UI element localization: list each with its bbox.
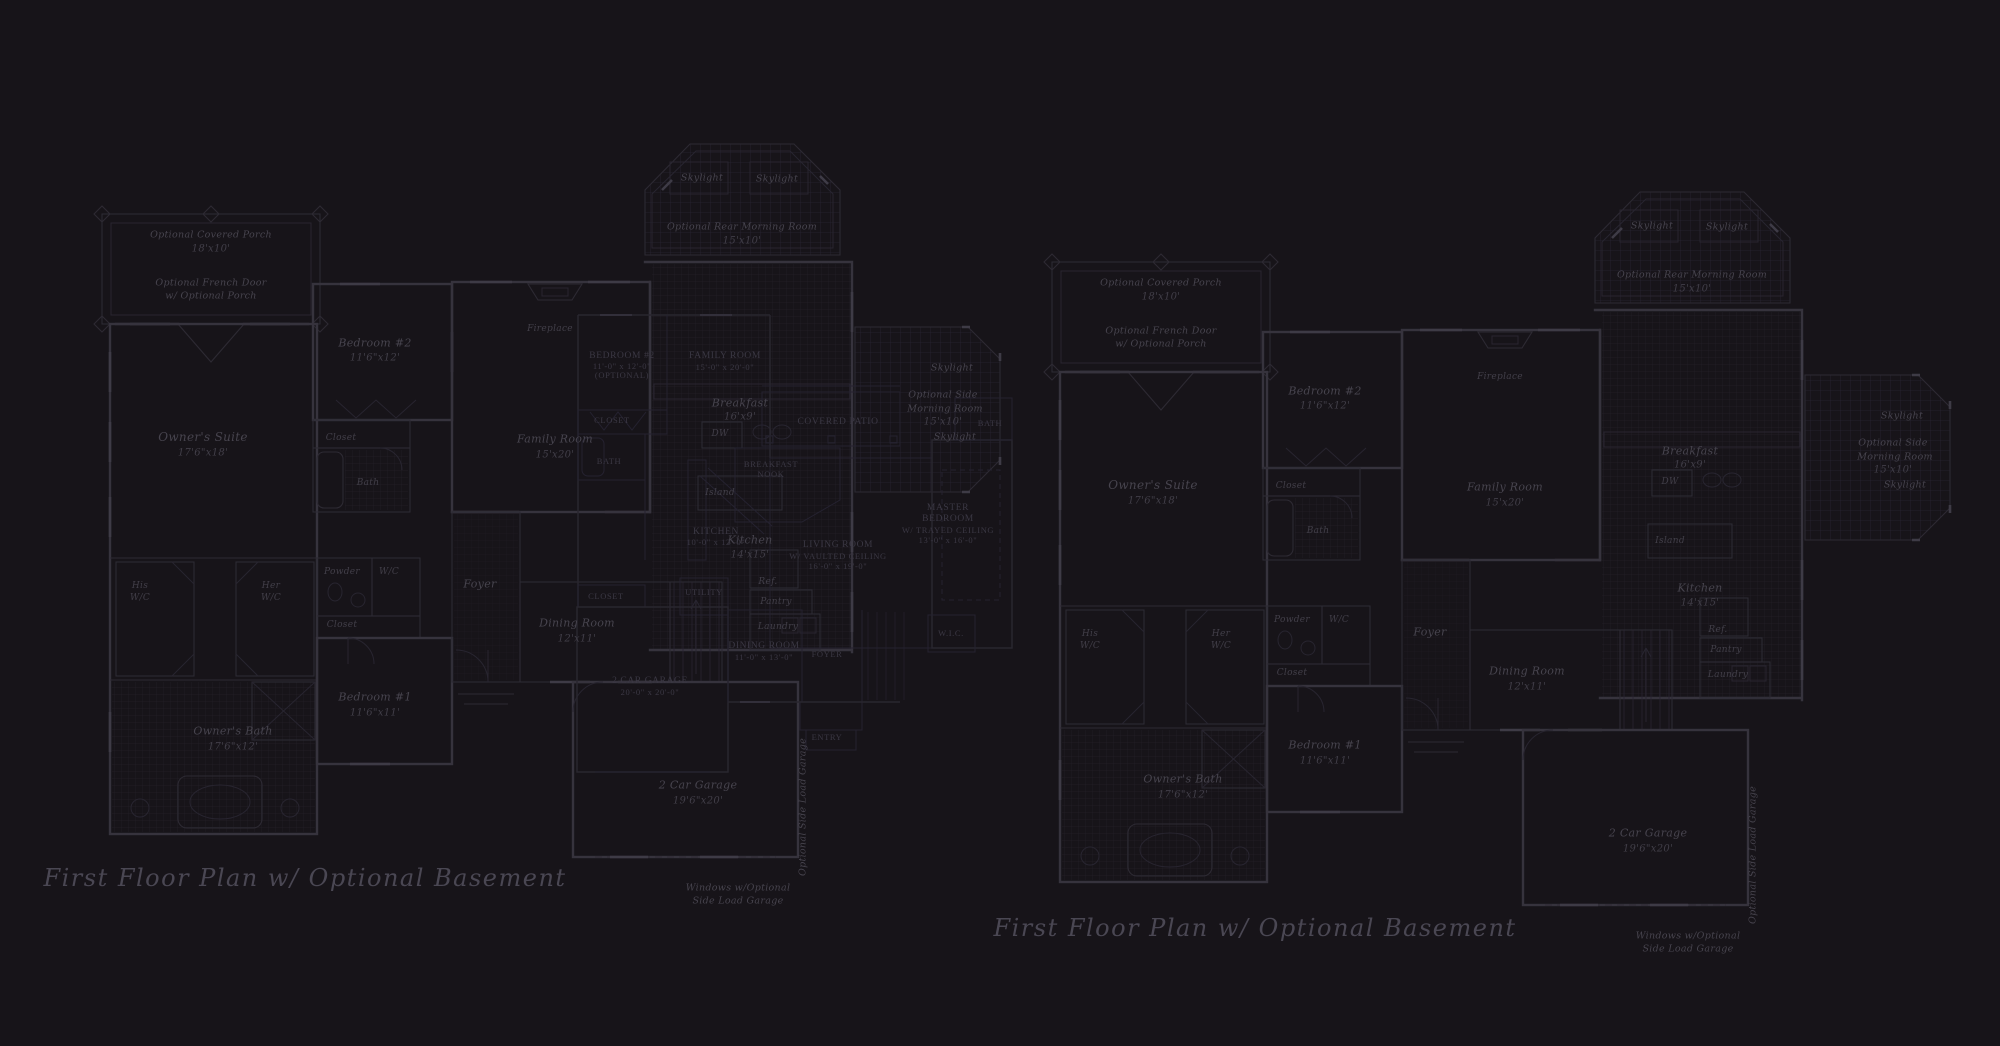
label-her-wc: Her <box>1212 629 1230 639</box>
room-label-kitchen: Kitchen <box>1677 582 1722 595</box>
overlay-label-garage: 2 CAR GARAGE <box>612 676 688 686</box>
room-label-foyer: Foyer <box>463 578 496 591</box>
room-dim-kitchen: 14'x15' <box>731 550 770 561</box>
label-laundry: Laundry <box>758 622 798 632</box>
label-skylight: Skylight <box>756 174 798 185</box>
overlay-label-wic: W.I.C. <box>938 628 964 638</box>
room-label-bath: Bath <box>1307 526 1330 536</box>
overlay-dim-family-room: 15'-0" x 20'-0" <box>696 362 755 372</box>
room-label-owners-suite: Owner's Suite <box>158 430 248 444</box>
room-dim-owners-bath: 17'6"x12' <box>208 742 258 753</box>
room-label-breakfast: Breakfast <box>1662 445 1718 458</box>
room-label-bedroom2: Bedroom #2 <box>338 337 411 350</box>
note-windows: Windows w/Optional <box>1636 931 1741 942</box>
room-dim-bedroom1: 11'6"x11' <box>1300 756 1350 767</box>
blueprint-canvas: Optional Covered Porch 18'x10' Optional … <box>0 0 2000 1046</box>
overlay-label-breakfast-nook: BREAKFAST <box>744 459 798 469</box>
left-plan-caption: First Floor Plan w/ Optional Basement <box>43 864 566 892</box>
room-label-family-room: Family Room <box>517 433 593 446</box>
label-powder: Powder <box>1274 615 1310 625</box>
room-label-bedroom1: Bedroom #1 <box>1288 739 1361 752</box>
room-label-side-morning: Morning Room <box>907 404 983 415</box>
label-laundry: Laundry <box>1708 670 1748 680</box>
room-label-closet: Closet <box>326 433 357 443</box>
note-windows: Side Load Garage <box>692 896 783 907</box>
label-wc: W/C <box>1329 615 1349 625</box>
room-label-rear-morning: Optional Rear Morning Room <box>667 222 817 233</box>
overlay-label-foyer: FOYER <box>812 649 843 659</box>
overlay-label-closet: CLOSET <box>594 415 630 425</box>
room-dim-rear-morning: 15'x10' <box>723 236 762 247</box>
label-skylight: Skylight <box>1884 480 1926 491</box>
room-label-covered-porch: Optional Covered Porch <box>150 230 272 241</box>
room-label-foyer: Foyer <box>1413 626 1446 639</box>
room-label-side-morning: Morning Room <box>1857 452 1933 463</box>
room-label-side-morning: Optional Side <box>908 390 977 401</box>
room-dim-garage: 19'6"x20' <box>1623 844 1673 855</box>
room-label-dining: Dining Room <box>539 617 615 630</box>
room-dim-bedroom2: 11'6"x12' <box>1300 401 1350 412</box>
overlay-label-covered-patio: COVERED PATIO <box>797 417 878 427</box>
overlay-label-living-room: LIVING ROOM <box>803 540 873 550</box>
label-his-wc: His <box>1082 629 1098 639</box>
overlay-label-bath: BATH <box>597 456 622 466</box>
room-label-garage: 2 Car Garage <box>1609 827 1688 840</box>
room-dim-bedroom2: 11'6"x12' <box>350 353 400 364</box>
room-dim-covered-porch: 18'x10' <box>1142 292 1181 303</box>
room-label-side-morning: Optional Side <box>1858 438 1927 449</box>
overlay-label-master: BEDROOM <box>922 514 974 524</box>
room-dim-owners-suite: 17'6"x18' <box>1128 496 1178 507</box>
label-her-wc: Her <box>262 581 280 591</box>
label-island: Island <box>705 488 735 498</box>
overlay-note-bedroom2: (OPTIONAL) <box>595 370 649 380</box>
overlay-dim-master: 13'-0" x 16'-0" <box>919 535 978 545</box>
room-label-bedroom1: Bedroom #1 <box>338 691 411 704</box>
label-wc: W/C <box>379 567 399 577</box>
overlay-dim-living-room: 16'-0" x 19'-0" <box>809 561 868 571</box>
label-powder: Powder <box>324 567 360 577</box>
label-island: Island <box>1655 536 1685 546</box>
label-his-wc: His <box>132 581 148 591</box>
room-label-bedroom2: Bedroom #2 <box>1288 385 1361 398</box>
note-side-load-garage: Optional Side Load Garage <box>798 738 809 876</box>
overlay-dim-dining: 11'-0" x 13'-0" <box>735 652 793 662</box>
room-dim-rear-morning: 15'x10' <box>1673 284 1712 295</box>
label-skylight: Skylight <box>1631 221 1673 232</box>
label-ref: Ref. <box>1708 625 1727 635</box>
label-skylight: Skylight <box>1706 222 1748 233</box>
overlay-note-living-room: W/ VAULTED CEILING <box>789 551 887 561</box>
room-label-family-room: Family Room <box>1467 481 1543 494</box>
room-label-closet: Closet <box>327 620 358 630</box>
label-ref: Ref. <box>758 577 777 587</box>
room-label-covered-porch: Optional Covered Porch <box>1100 278 1222 289</box>
label-his-wc: W/C <box>130 593 150 603</box>
overlay-label-master-bath: BATH <box>978 418 1003 428</box>
room-label-bath: Bath <box>357 478 380 488</box>
room-label-owners-suite: Owner's Suite <box>1108 478 1198 492</box>
overlay-note-master: W/ TRAYED CEILING <box>902 525 994 535</box>
room-dim-family-room: 15'x20' <box>1486 498 1525 509</box>
room-label-owners-bath: Owner's Bath <box>193 725 272 738</box>
label-skylight: Skylight <box>934 432 976 443</box>
label-dw: DW <box>1661 477 1678 487</box>
room-dim-covered-porch: 18'x10' <box>192 244 231 255</box>
note-french-door: Optional French Door <box>155 278 266 289</box>
room-label-breakfast: Breakfast <box>712 397 768 410</box>
label-pantry: Pantry <box>1710 645 1742 655</box>
label-fireplace: Fireplace <box>527 324 573 334</box>
room-dim-owners-suite: 17'6"x18' <box>178 448 228 459</box>
overlay-dim-garage: 20'-0" x 20'-0" <box>621 687 680 697</box>
note-french-door: w/ Optional Porch <box>165 291 256 302</box>
room-dim-owners-bath: 17'6"x12' <box>1158 790 1208 801</box>
right-plan-caption: First Floor Plan w/ Optional Basement <box>993 914 1516 942</box>
overlay-label-dining: DINING ROOM <box>728 641 799 651</box>
note-side-load-garage: Optional Side Load Garage <box>1748 786 1759 924</box>
note-french-door: Optional French Door <box>1105 326 1216 337</box>
room-label-owners-bath: Owner's Bath <box>1143 773 1222 786</box>
room-label-garage: 2 Car Garage <box>659 779 738 792</box>
room-dim-garage: 19'6"x20' <box>673 796 723 807</box>
room-dim-breakfast: 16'x9' <box>724 412 756 423</box>
room-dim-side-morning: 15'x10' <box>924 417 963 428</box>
overlay-dim-kitchen: 10'-0" x 12'-0" <box>687 537 746 547</box>
room-dim-family-room: 15'x20' <box>536 450 575 461</box>
room-label-closet: Closet <box>1277 668 1308 678</box>
overlay-label-breakfast-nook: NOOK <box>758 469 785 479</box>
label-his-wc: W/C <box>1080 641 1100 651</box>
note-french-door: w/ Optional Porch <box>1115 339 1206 350</box>
overlay-label-family-room: FAMILY ROOM <box>689 351 761 361</box>
label-her-wc: W/C <box>1211 641 1231 651</box>
room-dim-kitchen: 14'x15' <box>1681 598 1720 609</box>
room-dim-dining: 12'x11' <box>1508 682 1547 693</box>
overlay-label-kitchen: KITCHEN <box>693 527 739 537</box>
note-windows: Side Load Garage <box>1642 944 1733 955</box>
label-pantry: Pantry <box>760 597 792 607</box>
room-label-dining: Dining Room <box>1489 665 1565 678</box>
room-dim-breakfast: 16'x9' <box>1674 460 1706 471</box>
label-skylight: Skylight <box>681 173 723 184</box>
label-skylight: Skylight <box>931 363 973 374</box>
overlay-label-entry: ENTRY <box>812 732 843 742</box>
overlay-label-master: MASTER <box>927 503 969 513</box>
overlay-label-bedroom2: BEDROOM #2 <box>589 351 654 361</box>
note-windows: Windows w/Optional <box>686 883 791 894</box>
room-dim-dining: 12'x11' <box>558 634 597 645</box>
overlay-label-closet-g: CLOSET <box>588 591 624 601</box>
label-her-wc: W/C <box>261 593 281 603</box>
room-label-rear-morning: Optional Rear Morning Room <box>1617 270 1767 281</box>
label-dw: DW <box>711 429 728 439</box>
room-label-closet: Closet <box>1276 481 1307 491</box>
room-dim-side-morning: 15'x10' <box>1874 465 1913 476</box>
label-fireplace: Fireplace <box>1477 372 1523 382</box>
overlay-label-utility: UTILITY <box>685 587 723 597</box>
room-dim-bedroom1: 11'6"x11' <box>350 708 400 719</box>
label-skylight: Skylight <box>1881 411 1923 422</box>
